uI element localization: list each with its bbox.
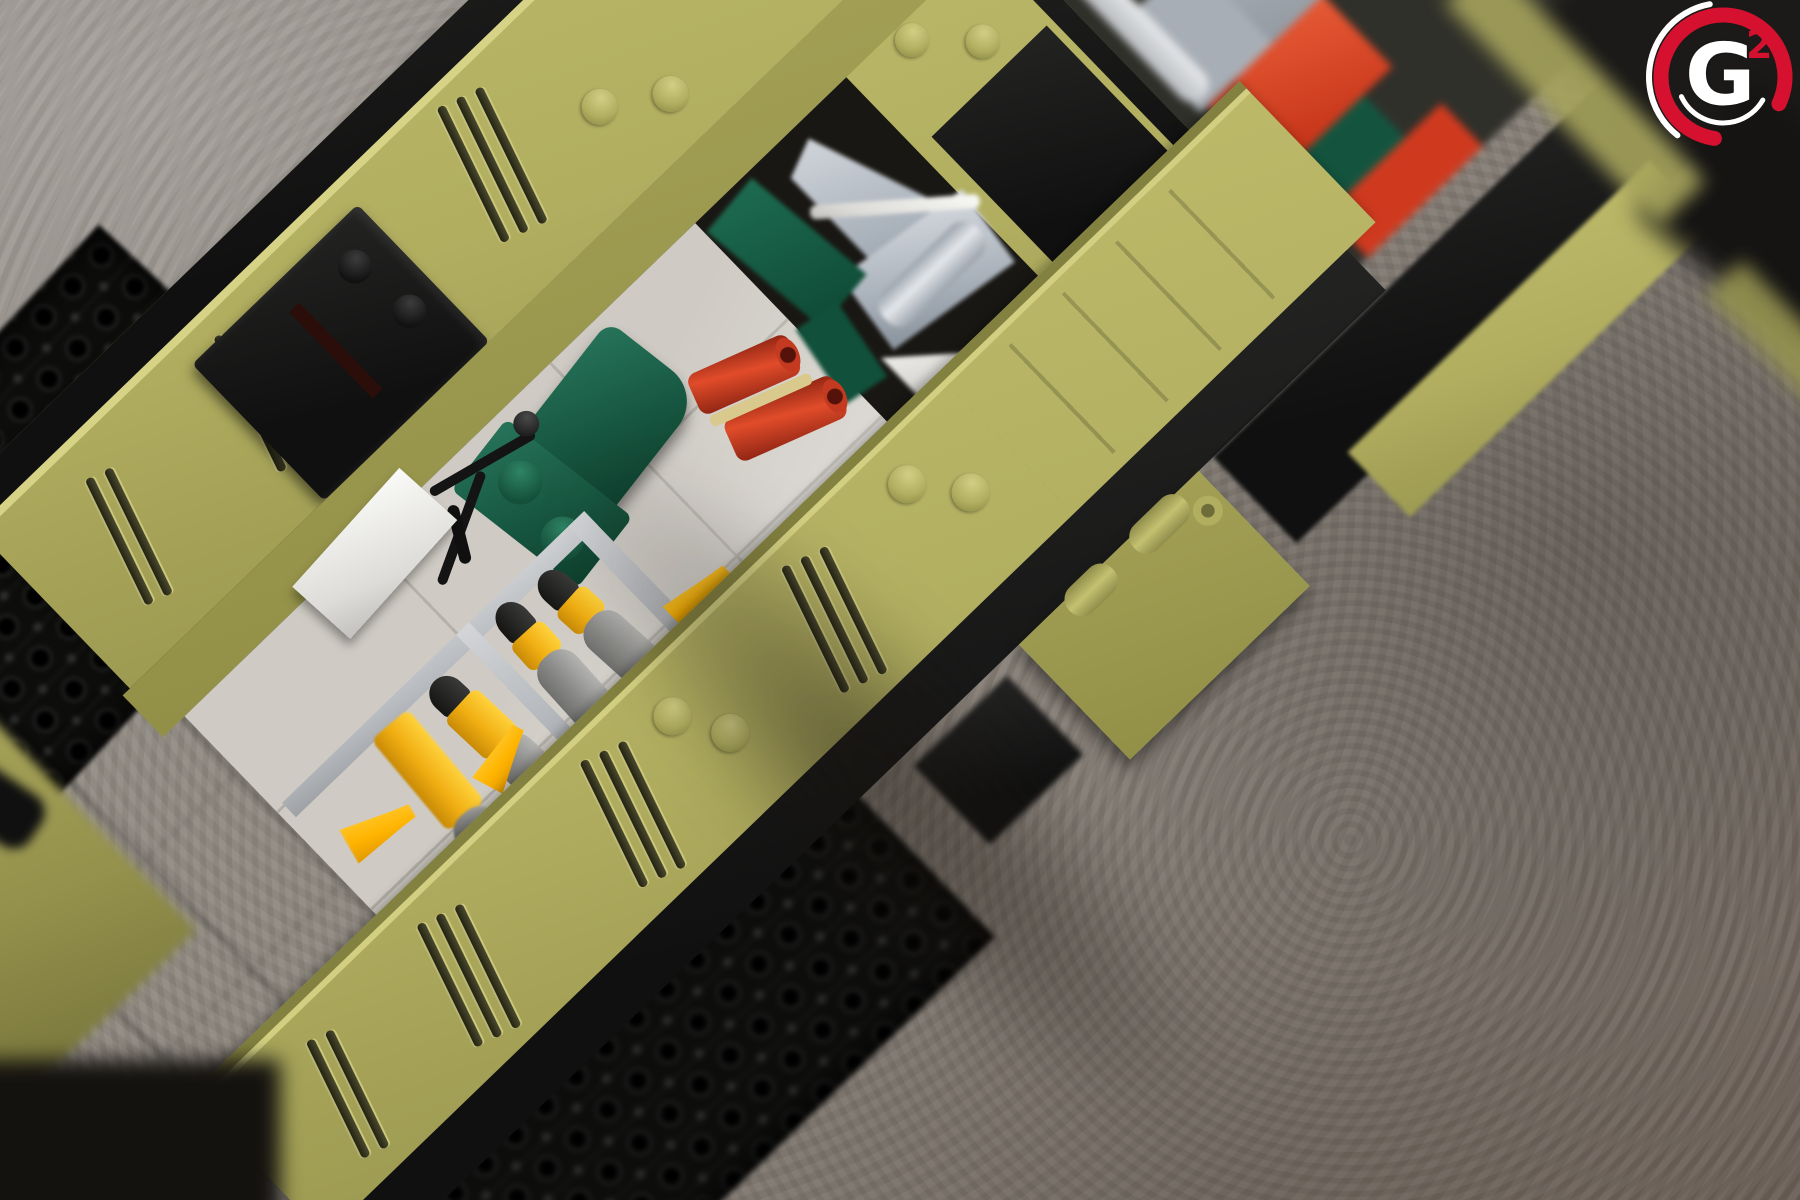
yellow-cone (335, 787, 426, 871)
g2-logo: G 2 (1638, 0, 1800, 162)
left-wall-vent-group (436, 86, 548, 243)
right-wall-stud (944, 466, 998, 520)
tool-box-stud (331, 243, 379, 291)
blurred-foreground-dark (0, 1060, 280, 1200)
g2-logo-letter: G (1685, 32, 1756, 118)
tool-box-detail (289, 302, 382, 398)
tool-box-stud (385, 287, 433, 335)
left-wall-stud (574, 81, 625, 132)
right-wall-vent-group (579, 740, 686, 888)
left-wall-stud (645, 69, 696, 120)
extinguisher-cap (771, 334, 806, 376)
right-wall-stud (880, 457, 934, 511)
right-wall-vent-group (416, 903, 521, 1048)
deck-stud (959, 17, 1007, 65)
lego-vehicle-photo: G 2 (0, 0, 1800, 1200)
right-wall-vent-group (306, 1029, 390, 1159)
g2-logo-exponent: 2 (1746, 26, 1772, 64)
left-wall-vent-group (85, 467, 173, 606)
